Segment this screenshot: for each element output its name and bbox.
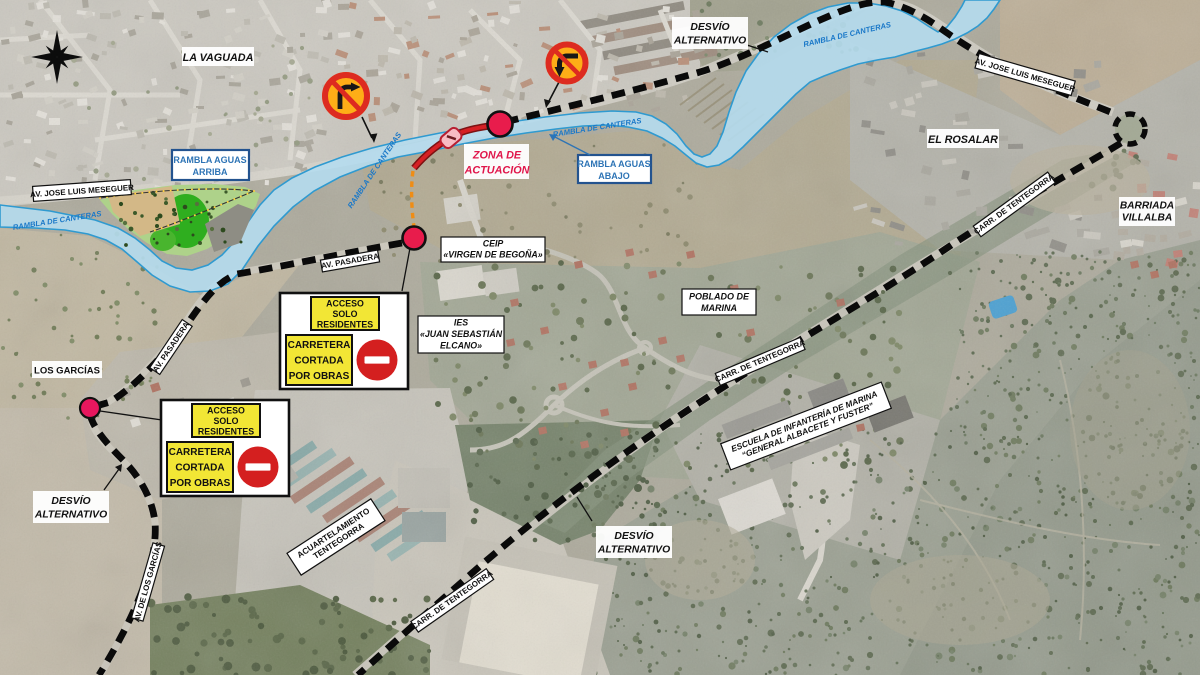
svg-text:ALTERNATIVO: ALTERNATIVO — [597, 545, 670, 556]
svg-text:POR OBRAS: POR OBRAS — [170, 478, 231, 489]
svg-text:ARRIBA: ARRIBA — [193, 167, 228, 177]
svg-text:CARRETERA: CARRETERA — [169, 447, 232, 458]
svg-text:SOLO: SOLO — [333, 309, 358, 319]
svg-text:«VIRGEN DE BEGOÑA»: «VIRGEN DE BEGOÑA» — [443, 250, 542, 260]
svg-text:ELCANO»: ELCANO» — [440, 341, 482, 351]
svg-text:ZONA DE: ZONA DE — [472, 150, 522, 162]
svg-text:MARINA: MARINA — [701, 303, 737, 313]
svg-text:DESVÍO: DESVÍO — [690, 20, 729, 33]
svg-text:LA VAGUADA: LA VAGUADA — [183, 52, 254, 64]
svg-text:RESIDENTES: RESIDENTES — [317, 319, 373, 329]
svg-text:ACCESO: ACCESO — [207, 406, 245, 416]
svg-text:CORTADA: CORTADA — [294, 355, 343, 366]
svg-text:SOLO: SOLO — [214, 416, 239, 426]
svg-text:RAMBLA AGUAS: RAMBLA AGUAS — [173, 155, 246, 165]
svg-text:ALTERNATIVO: ALTERNATIVO — [673, 36, 746, 47]
svg-text:BARRIADA: BARRIADA — [1120, 200, 1174, 211]
svg-text:RESIDENTES: RESIDENTES — [198, 426, 254, 436]
svg-text:ABAJO: ABAJO — [598, 171, 630, 181]
svg-text:CARRETERA: CARRETERA — [288, 340, 351, 351]
svg-text:LOS GARCÍAS: LOS GARCÍAS — [34, 366, 100, 377]
svg-text:IES: IES — [454, 318, 468, 328]
svg-text:ACTUACIÓN: ACTUACIÓN — [464, 164, 530, 177]
svg-text:CORTADA: CORTADA — [175, 462, 224, 473]
svg-text:ACCESO: ACCESO — [326, 299, 364, 309]
svg-text:VILLALBA: VILLALBA — [1122, 212, 1172, 223]
svg-text:EL ROSALAR: EL ROSALAR — [928, 134, 998, 146]
svg-text:DESVÍO: DESVÍO — [614, 529, 653, 542]
svg-text:RAMBLA AGUAS: RAMBLA AGUAS — [577, 159, 650, 169]
svg-text:«JUAN SEBASTIÁN: «JUAN SEBASTIÁN — [420, 329, 503, 339]
svg-text:POR OBRAS: POR OBRAS — [289, 371, 350, 382]
svg-text:POBLADO DE: POBLADO DE — [689, 292, 750, 302]
svg-text:ALTERNATIVO: ALTERNATIVO — [34, 510, 107, 521]
svg-text:DESVÍO: DESVÍO — [51, 494, 90, 507]
svg-text:CEIP: CEIP — [483, 239, 504, 249]
